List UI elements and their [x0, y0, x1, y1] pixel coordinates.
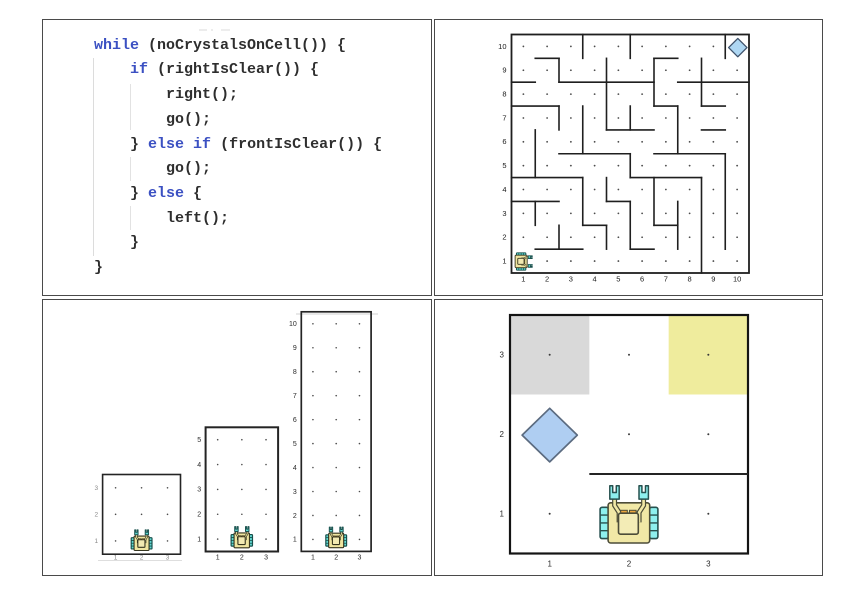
svg-text:1: 1: [293, 537, 297, 544]
svg-text:3: 3: [569, 275, 573, 284]
svg-text:3: 3: [500, 351, 505, 360]
svg-text:1: 1: [521, 275, 525, 284]
svg-text:3: 3: [293, 489, 297, 496]
svg-text:6: 6: [640, 275, 644, 284]
svg-text:2: 2: [94, 512, 98, 519]
svg-text:1: 1: [500, 510, 505, 519]
svg-text:4: 4: [593, 275, 597, 284]
svg-text:10: 10: [733, 275, 741, 284]
svg-text:1: 1: [311, 554, 315, 561]
svg-text:5: 5: [502, 161, 506, 170]
svg-text:2: 2: [293, 513, 297, 520]
svg-text:2: 2: [334, 554, 338, 561]
svg-text:4: 4: [293, 465, 297, 472]
svg-text:2: 2: [545, 275, 549, 284]
svg-text:2: 2: [240, 555, 244, 562]
svg-text:7: 7: [664, 275, 668, 284]
svg-text:1: 1: [94, 538, 98, 545]
svg-text:9: 9: [293, 345, 297, 352]
svg-text:6: 6: [293, 417, 297, 424]
svg-text:7: 7: [502, 113, 506, 122]
svg-text:8: 8: [502, 90, 506, 99]
svg-text:9: 9: [502, 66, 506, 75]
svg-text:1: 1: [502, 256, 506, 265]
svg-text:6: 6: [502, 137, 506, 146]
svg-text:5: 5: [197, 437, 201, 444]
svg-text:5: 5: [616, 275, 620, 284]
svg-text:2: 2: [197, 512, 201, 519]
svg-text:1: 1: [197, 536, 201, 543]
svg-text:7: 7: [293, 393, 297, 400]
svg-text:3: 3: [94, 485, 98, 492]
svg-text:9: 9: [711, 275, 715, 284]
svg-text:10: 10: [498, 42, 506, 51]
svg-text:3: 3: [706, 560, 711, 569]
svg-text:2: 2: [627, 560, 632, 569]
svg-text:8: 8: [293, 369, 297, 376]
svg-text:10: 10: [289, 321, 297, 328]
svg-text:8: 8: [688, 275, 692, 284]
svg-text:3: 3: [197, 487, 201, 494]
svg-text:3: 3: [502, 209, 506, 218]
svg-text:1: 1: [216, 555, 220, 562]
svg-text:4: 4: [502, 185, 506, 194]
svg-text:3: 3: [264, 555, 268, 562]
svg-text:2: 2: [502, 233, 506, 242]
svg-text:2: 2: [500, 430, 505, 439]
svg-text:4: 4: [197, 462, 201, 469]
svg-text:1: 1: [547, 560, 552, 569]
svg-text:5: 5: [293, 441, 297, 448]
svg-text:3: 3: [358, 554, 362, 561]
